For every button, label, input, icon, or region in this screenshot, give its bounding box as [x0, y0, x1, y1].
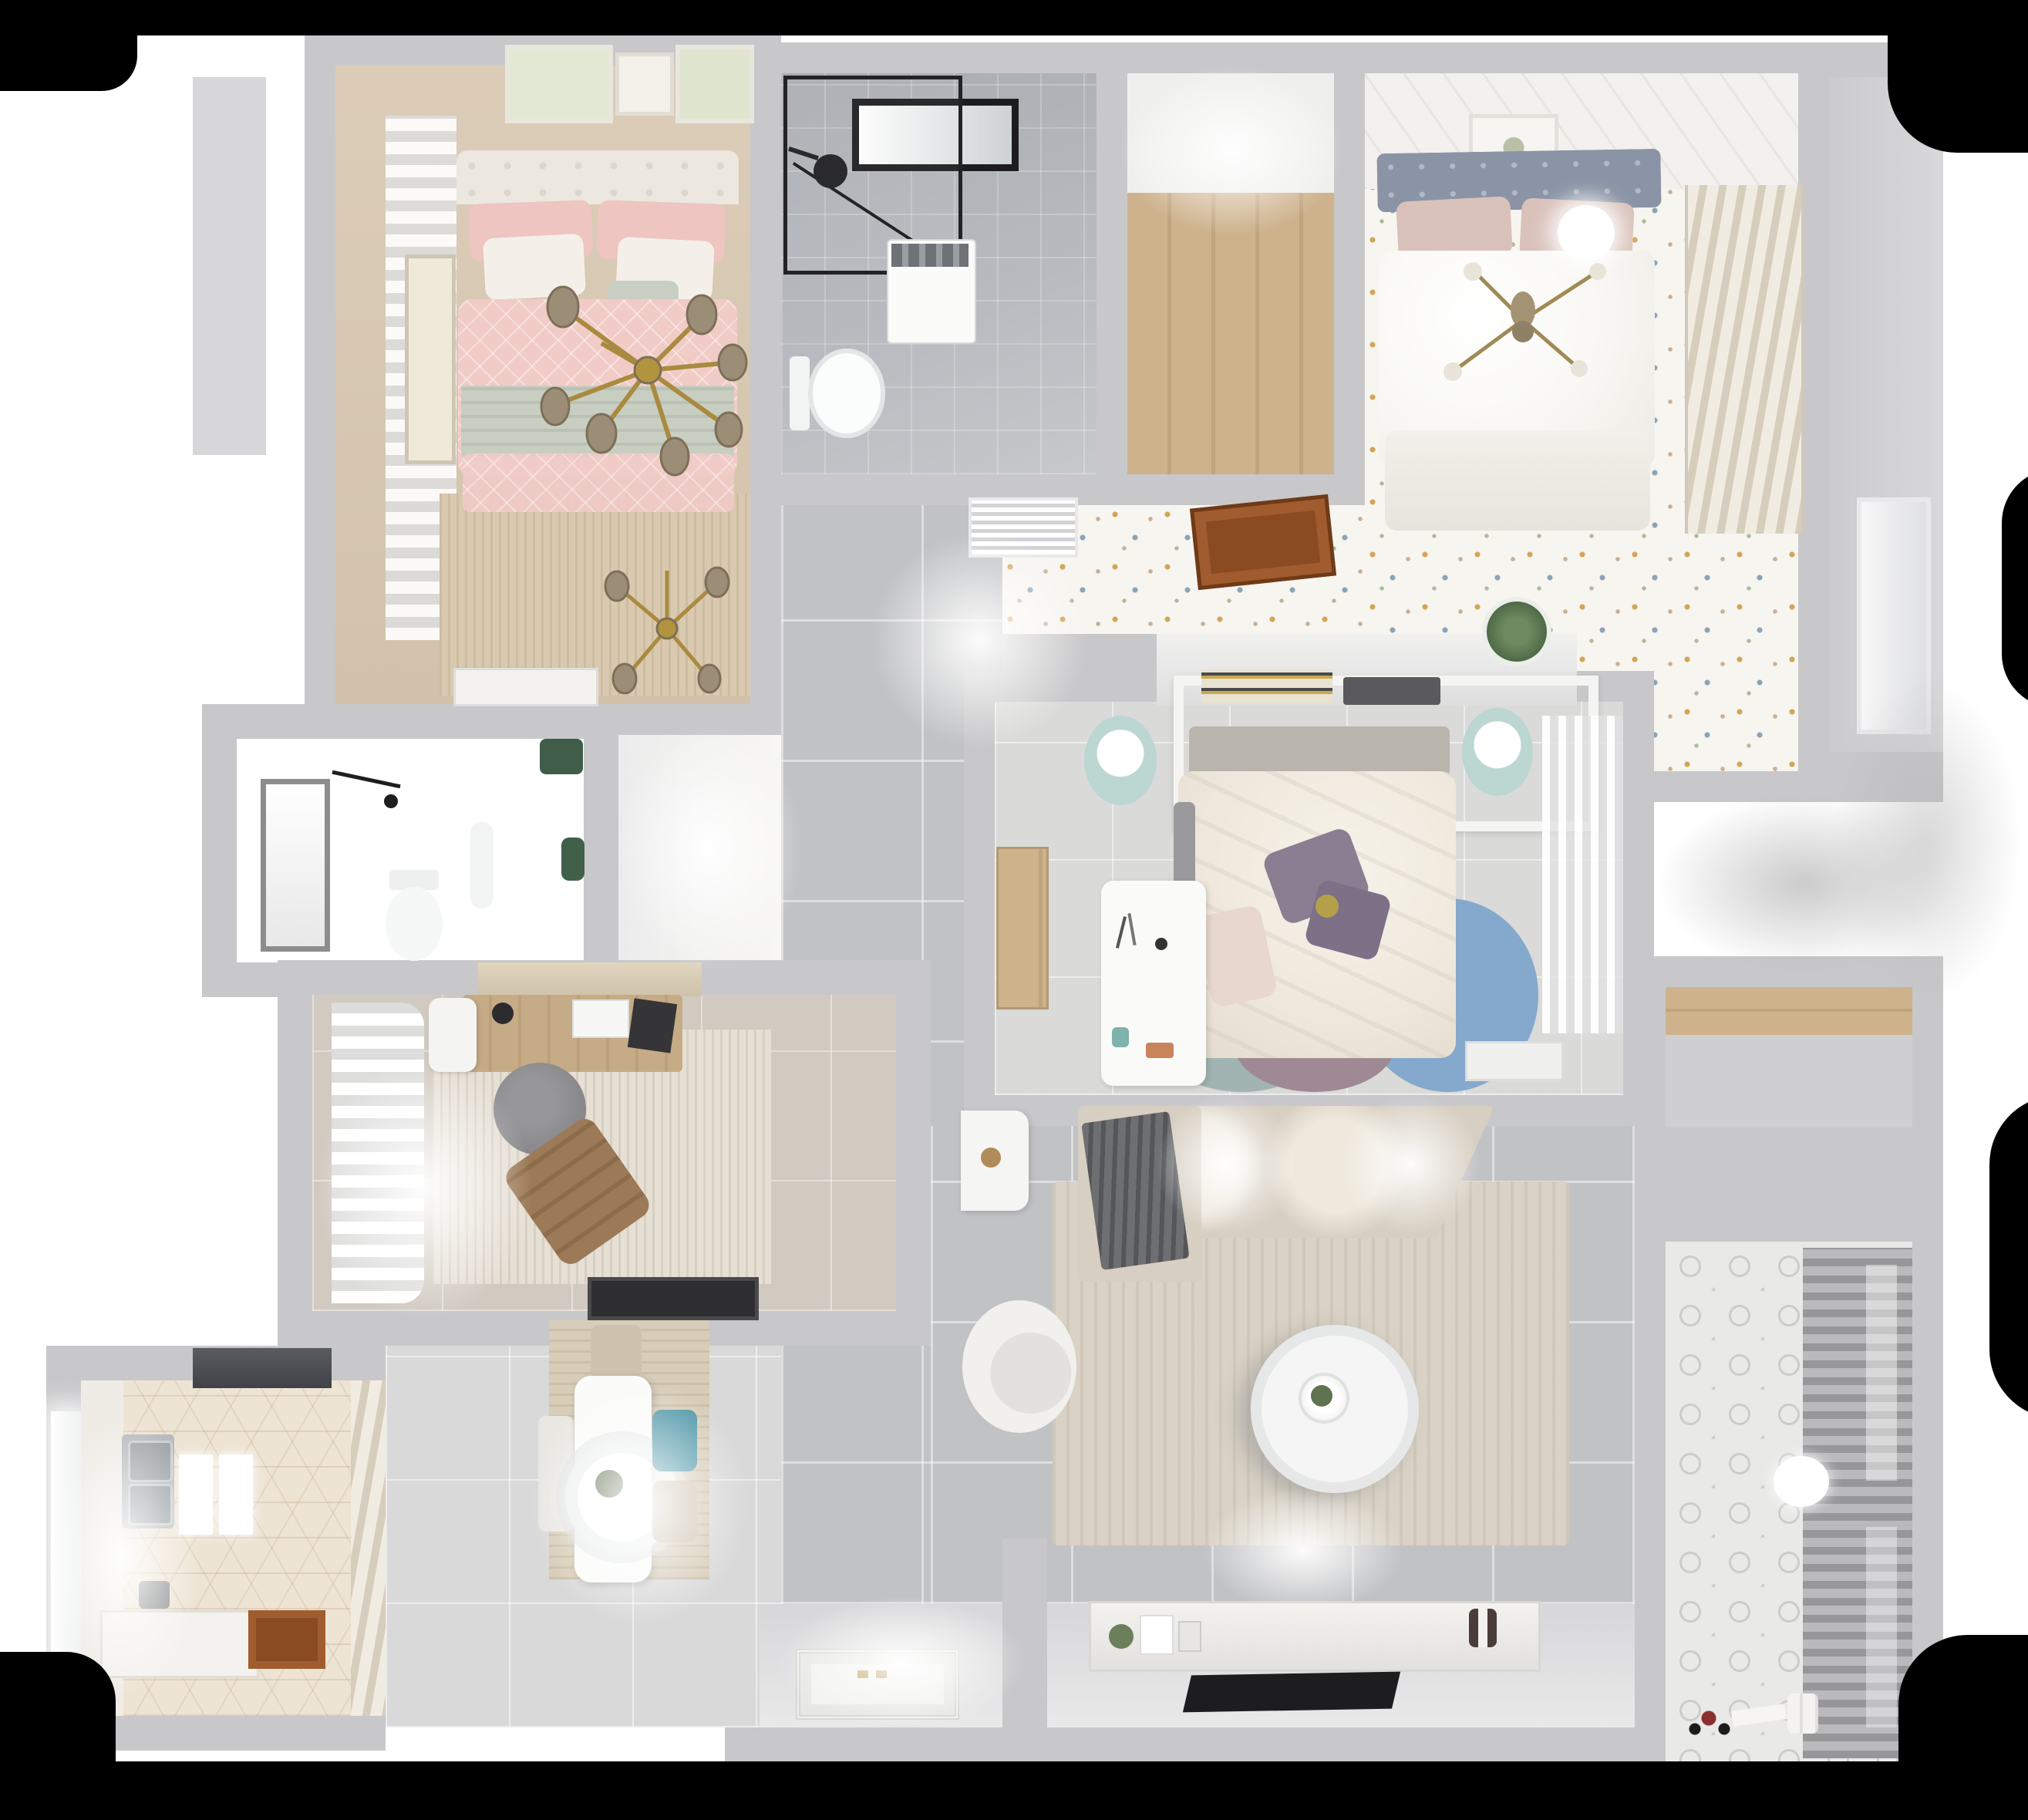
range-hood — [193, 1348, 332, 1388]
louvered-wardrobe — [1685, 185, 1804, 534]
wall-hall-bottom — [1002, 634, 1172, 671]
study-desk-lamp — [492, 1003, 514, 1024]
desk-dot — [1155, 938, 1167, 950]
rack-light-streak-1 — [1866, 1265, 1897, 1481]
console-box-1 — [1140, 1615, 1174, 1655]
rack-light-streak-2 — [1866, 1527, 1897, 1727]
mask-top-left — [0, 0, 137, 91]
bathroom2-window — [261, 779, 330, 952]
louvered-pantry — [351, 1380, 386, 1716]
kitchen-window — [51, 1411, 85, 1689]
dining-chair-beige-2 — [652, 1481, 697, 1542]
bed1-headboard — [456, 150, 739, 204]
pendant-plant-center — [595, 1470, 623, 1498]
bathroom2-toilet-bowl — [386, 887, 443, 961]
hall-console-plant — [1487, 602, 1547, 662]
bathroom2-shower-knob — [384, 794, 398, 808]
wood-sideboard — [996, 847, 1049, 1009]
storage-niche-floor — [1666, 1035, 1912, 1127]
bathroom2-plant-2 — [561, 838, 584, 881]
corridor-bright-patch — [618, 735, 781, 960]
wall-tv-stub — [1002, 1539, 1047, 1727]
desk-phone — [1146, 1043, 1174, 1058]
open-wood-door — [1190, 494, 1336, 590]
gold-cross-fan-icon — [1427, 254, 1619, 393]
desk-cup — [1112, 1027, 1129, 1047]
study-papers — [572, 999, 629, 1038]
toy-car — [1686, 1706, 1735, 1737]
console-box-2 — [1178, 1621, 1201, 1652]
bathroom2-plant-1 — [540, 739, 583, 774]
entry-mat-handle-2 — [876, 1670, 887, 1678]
gold-chandelier-small-icon — [594, 563, 740, 698]
mask-right-crescent-1 — [2002, 469, 2028, 708]
mask-bottom-left — [0, 1652, 116, 1820]
kitchen-open-door — [248, 1610, 325, 1669]
cutting-board-1 — [179, 1454, 213, 1535]
exterior-ledge-left — [193, 77, 266, 455]
coffee-table-plant-leaf — [1311, 1385, 1332, 1407]
wall-art-frame-3 — [675, 45, 754, 123]
ceiling-light-disc — [1558, 205, 1615, 261]
mask-right-crescent-2 — [1989, 1095, 2028, 1419]
study-chair-white — [429, 998, 477, 1072]
floor-plan-canvas — [0, 0, 2028, 1820]
kitchen-counter-bottom — [100, 1610, 259, 1678]
toilet-tank — [790, 356, 810, 430]
washing-machine-panel — [891, 244, 969, 267]
nightstand-lamp-right — [1462, 708, 1533, 796]
shelf-tray — [1343, 677, 1440, 705]
toilet-bowl — [808, 349, 885, 438]
bed3-headboard — [1189, 726, 1450, 777]
console-plant-disc — [1109, 1624, 1134, 1649]
side-table-decor — [981, 1148, 1001, 1168]
cutting-board-2 — [219, 1454, 253, 1535]
study-valance — [478, 962, 702, 996]
shower-head-icon — [814, 154, 847, 188]
bedroom1-dresser — [453, 668, 598, 706]
window-art — [405, 254, 456, 464]
sheer-wardrobe — [1542, 716, 1623, 1033]
wall-art-frame-2 — [615, 52, 674, 116]
wall-art-frame-1 — [505, 45, 613, 123]
detergent-bottles — [1787, 1694, 1818, 1734]
gold-chandelier-icon — [509, 270, 756, 494]
mask-bottom-band — [0, 1761, 2028, 1820]
dining-chair-top — [591, 1325, 642, 1379]
sink-basin-2 — [128, 1484, 173, 1525]
nightstand-lamp-left — [1084, 716, 1157, 805]
study-curtains — [332, 1003, 424, 1303]
console-bottles — [1469, 1609, 1497, 1647]
sink-basin-1 — [128, 1441, 173, 1482]
study-laptop — [628, 998, 677, 1053]
balcony-ball-lamp — [1774, 1456, 1829, 1507]
dining-chair-teal — [652, 1410, 697, 1471]
mask-bottom-right — [1898, 1635, 2028, 1820]
mask-top-right — [1888, 0, 2028, 153]
entry-door-mat — [796, 1649, 959, 1720]
flat-tv — [1183, 1672, 1400, 1713]
exterior-shadow-right-2 — [1835, 679, 2020, 1003]
air-vent-grille — [969, 497, 1078, 558]
bed2-foot-fold — [1385, 430, 1650, 531]
entry-mat-handle-1 — [857, 1670, 868, 1678]
accent-chair — [962, 1300, 1076, 1433]
kitchen-appliance — [139, 1581, 170, 1609]
closet-wood-floor — [1127, 193, 1334, 474]
study-doormat — [588, 1277, 759, 1320]
bedroom3-bench — [1465, 1041, 1564, 1081]
gold-ornament — [1316, 895, 1339, 918]
shelf-books — [1201, 669, 1332, 703]
balcony-divider-wall — [1666, 1127, 1912, 1242]
bathroom2-pedestal-sink — [470, 822, 494, 908]
mask-top-band — [0, 0, 2028, 35]
